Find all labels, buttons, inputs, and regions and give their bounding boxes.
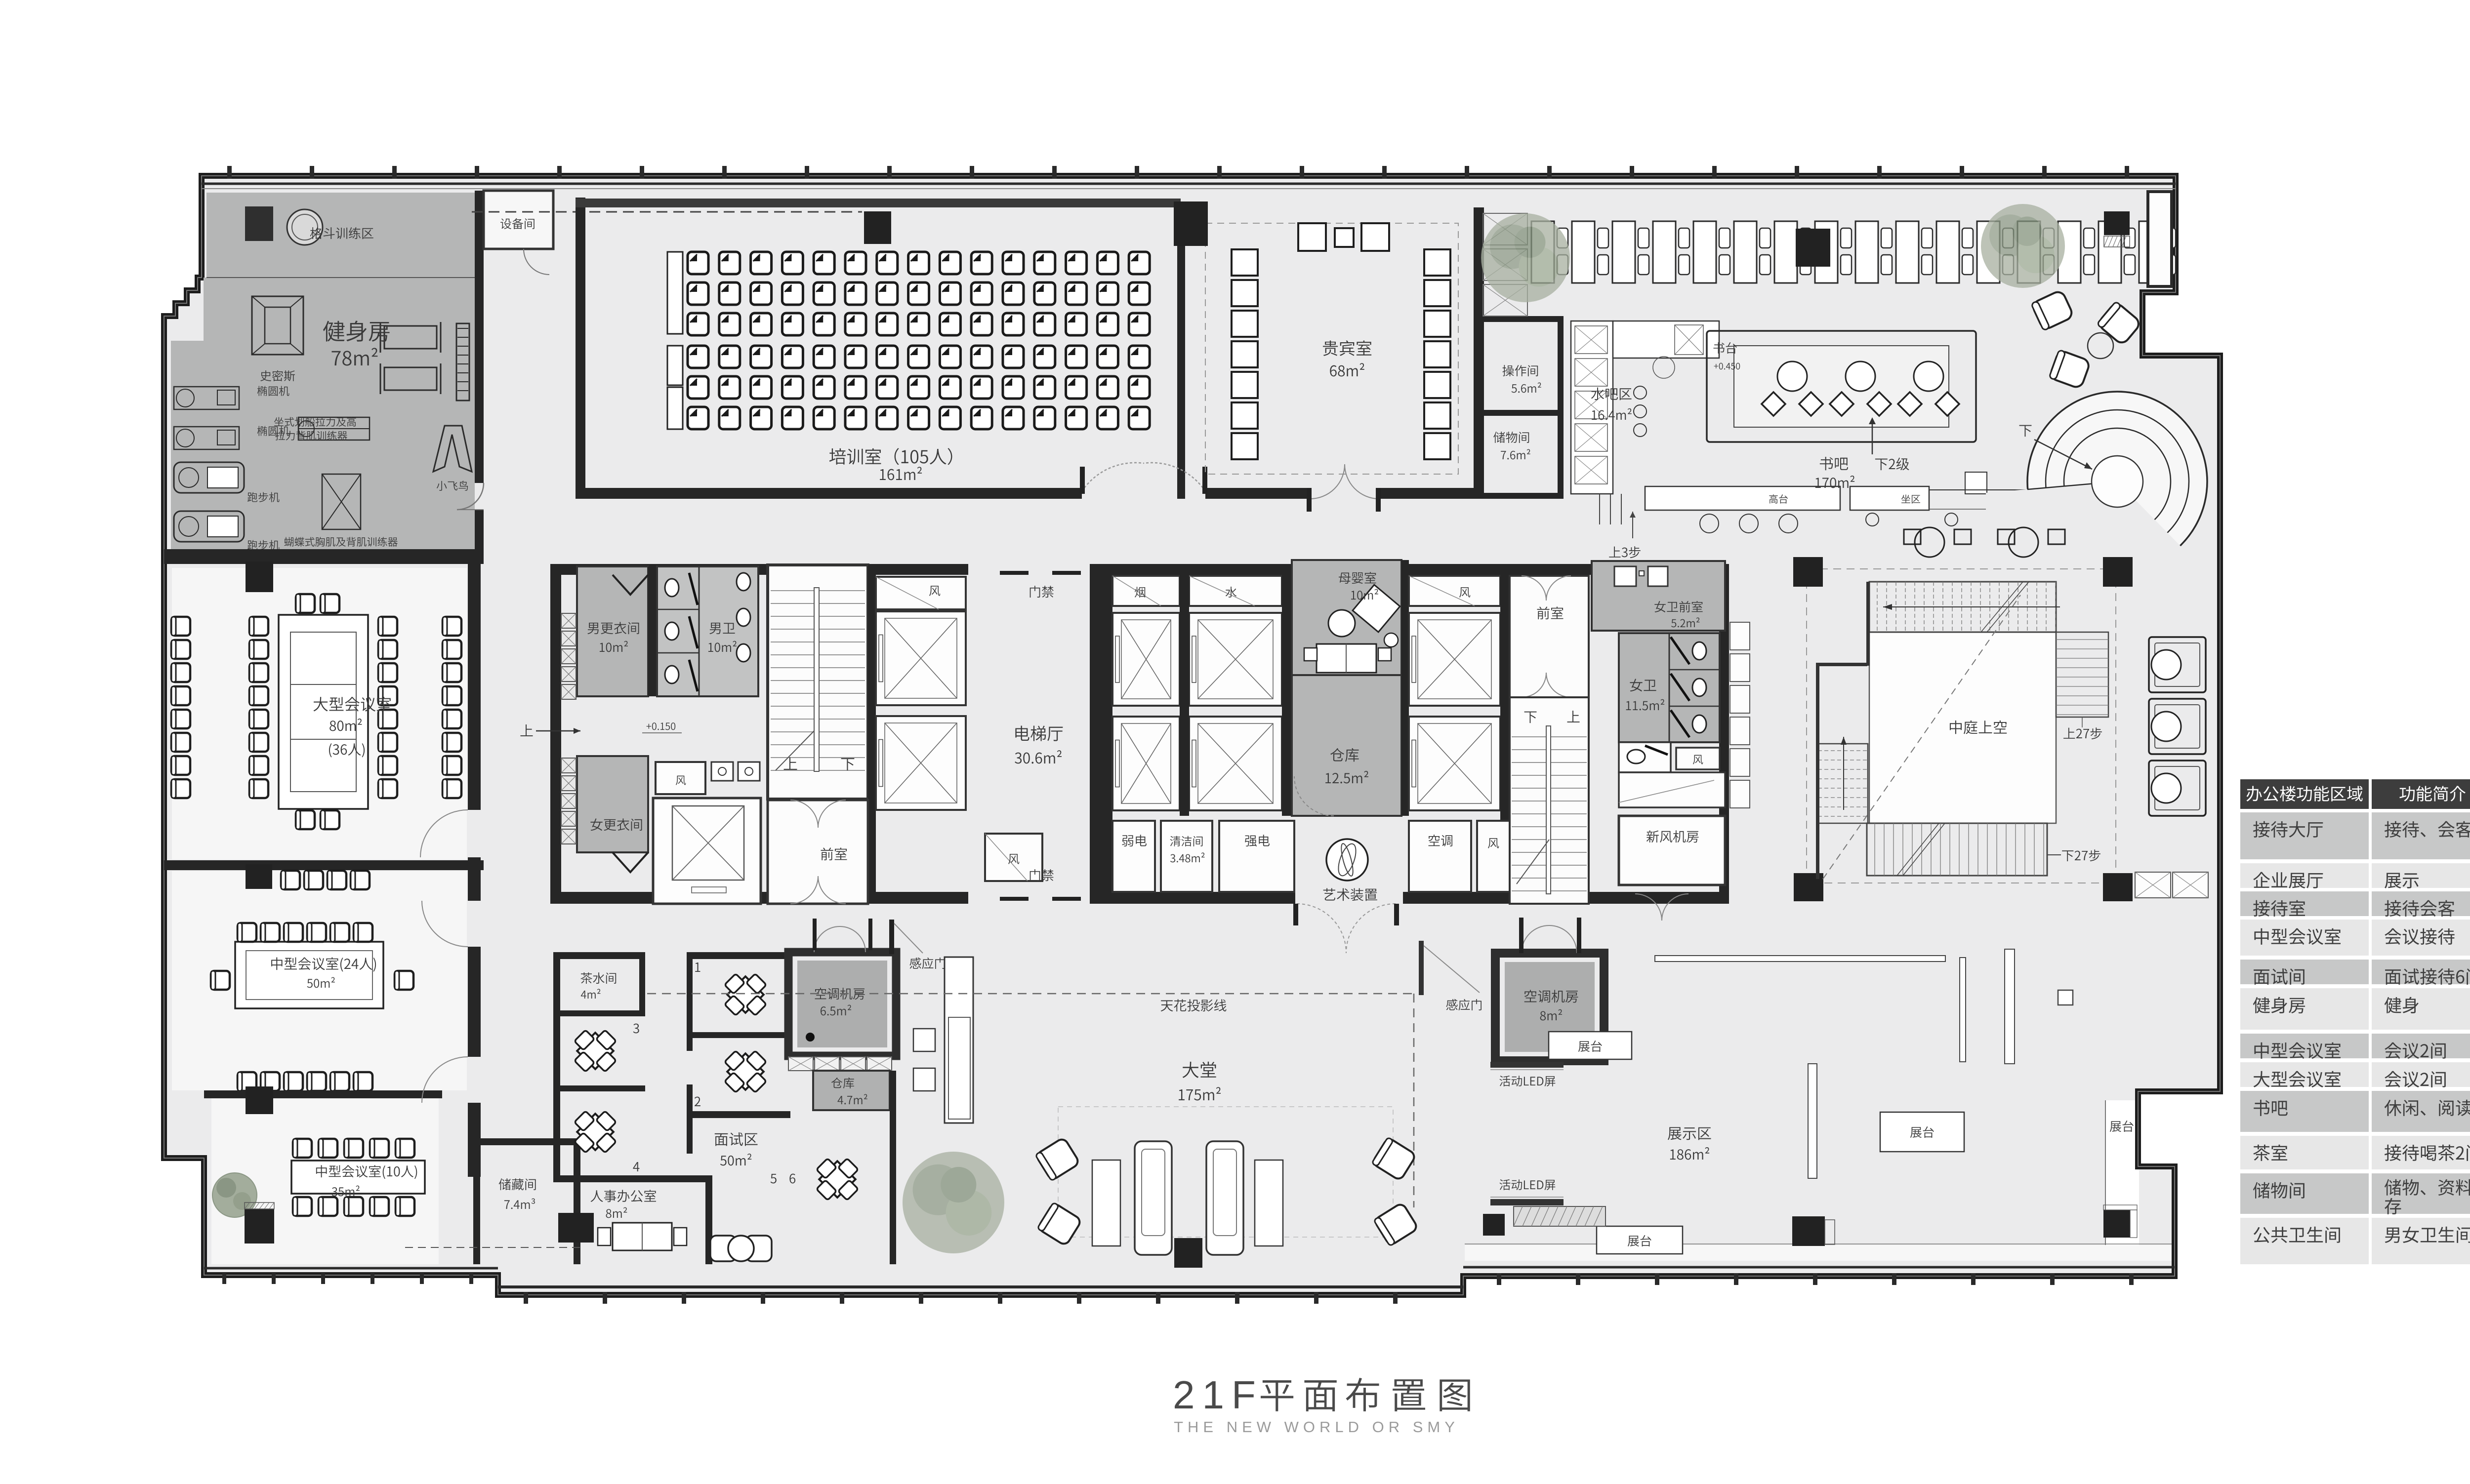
svg-text:21F: 21F	[1173, 1373, 1263, 1417]
svg-text:THE NEW WORLD OR SMY: THE NEW WORLD OR SMY	[1174, 1418, 1459, 1436]
